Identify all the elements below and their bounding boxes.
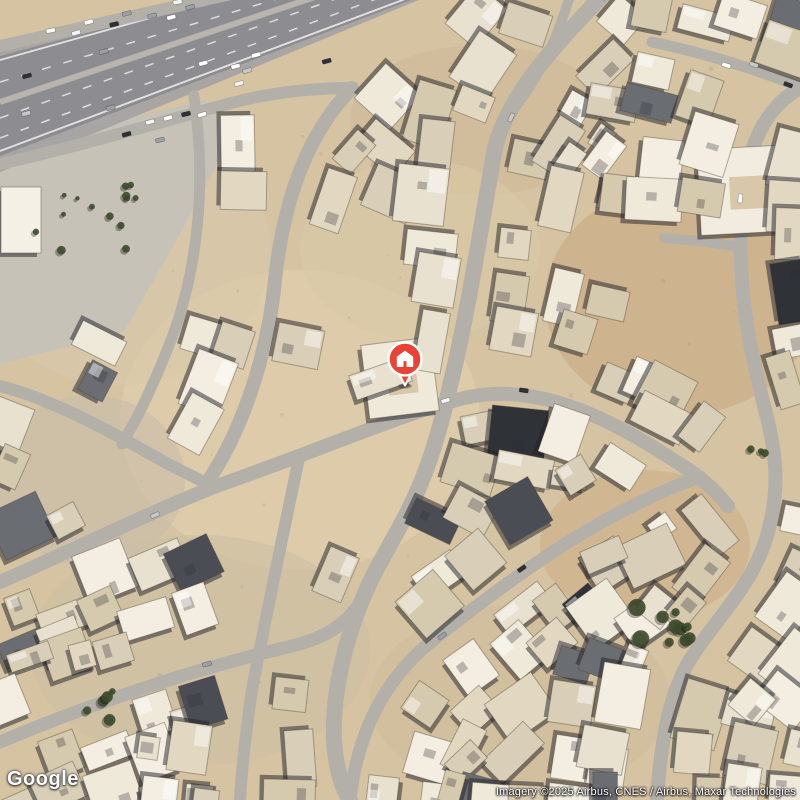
satellite-imagery[interactable] — [0, 0, 800, 800]
map-viewport[interactable]: Google Imagery ©2025 Airbus, CNES / Airb… — [0, 0, 800, 800]
home-pin-icon — [383, 337, 427, 389]
location-marker[interactable] — [383, 337, 427, 389]
google-logo[interactable]: Google — [7, 768, 79, 791]
imagery-attribution: Imagery ©2025 Airbus, CNES / Airbus, Max… — [496, 786, 796, 798]
